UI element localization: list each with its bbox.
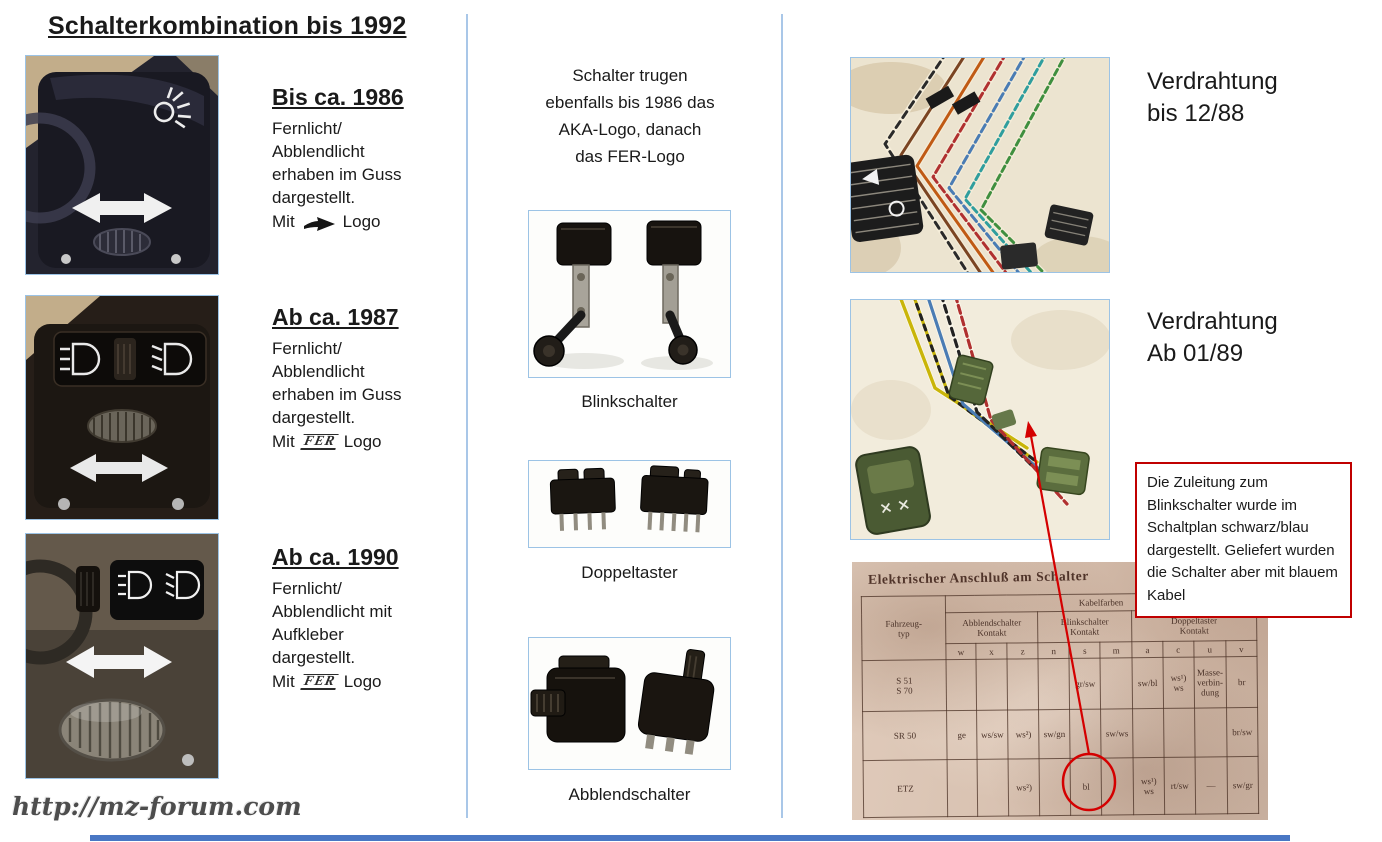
table-vehicle-header: Fahrzeug- typ: [861, 596, 946, 661]
middle-intro-text: Schalter trugen ebenfalls bis 1986 das A…: [500, 62, 760, 170]
photo-switch-bis-1986: [25, 55, 219, 275]
table-group-header: Abblendschalter Kontakt: [946, 612, 1038, 644]
abblendschalter-illustration: [529, 638, 730, 769]
slide: Schalterkombination bis 1992: [0, 0, 1382, 842]
anschluss-table: Fahrzeug- typ Kabelfarben Abblendschalte…: [861, 592, 1259, 818]
table-row: S 51 S 70 gr/sw sw/bl ws¹) ws Masse- ver…: [862, 656, 1258, 711]
photo-switch-ab-1987: [25, 295, 219, 520]
table-row: SR 50 ge ws/sw ws²) sw/gn sw/ws br/sw: [863, 707, 1258, 760]
entry-ab-1990: Ab ca. 1990 Fernlicht/ Abblendlicht mit …: [272, 544, 472, 694]
entry-ab-1987: Ab ca. 1987 Fernlicht/ Abblendlicht erha…: [272, 304, 472, 454]
label-blinkschalter: Blinkschalter: [528, 392, 731, 412]
wiring-diagram-before-illustration: [851, 58, 1109, 272]
label-abblendschalter: Abblendschalter: [528, 785, 731, 805]
photo-verdrahtung-bis-1288: [850, 57, 1110, 273]
heading-verdrahtung-ab-0189: Verdrahtung Ab 01/89: [1147, 306, 1278, 370]
entry-heading: Ab ca. 1987: [272, 304, 472, 331]
switch-photo-illustration: [26, 56, 218, 274]
column-divider: [781, 14, 783, 818]
photo-blinkschalter: [528, 210, 731, 378]
switch-photo-illustration: [26, 296, 218, 519]
wiring-diagram-after-illustration: [851, 300, 1109, 539]
photo-doppeltaster: [528, 460, 731, 548]
headlight-sticker: [110, 560, 204, 620]
watermark-url: http://mz-forum.com: [12, 792, 302, 821]
footer-accent-bar: [90, 835, 1290, 841]
entry-heading: Bis ca. 1986: [272, 84, 472, 111]
entry-heading: Ab ca. 1990: [272, 544, 472, 571]
table-title: Elektrischer Anschluß am Schalter: [868, 568, 1089, 588]
heading-verdrahtung-bis-1288: Verdrahtung bis 12/88: [1147, 66, 1278, 130]
photo-switch-ab-1990: [25, 533, 219, 779]
photo-verdrahtung-ab-0189: [850, 299, 1110, 540]
fer-logo-icon: FER: [300, 674, 338, 690]
switch-photo-illustration: [26, 534, 218, 778]
red-note-box: Die Zuleitung zum Blinkschalter wurde im…: [1135, 462, 1352, 618]
table-row: ETZ ws²) bl ws¹) ws rt/sw — sw/gr: [863, 756, 1259, 817]
entry-bis-1986: Bis ca. 1986 Fernlicht/ Abblendlicht erh…: [272, 84, 472, 234]
aka-logo-icon: [302, 214, 336, 229]
doppeltaster-illustration: [529, 461, 730, 547]
label-doppeltaster: Doppeltaster: [528, 563, 731, 583]
photo-abblendschalter: [528, 637, 731, 770]
fer-logo-icon: FER: [300, 434, 338, 450]
blinkschalter-illustration: [529, 211, 730, 377]
page-title: Schalterkombination bis 1992: [48, 12, 407, 41]
table-group-header: Blinkschalter Kontakt: [1038, 611, 1132, 643]
